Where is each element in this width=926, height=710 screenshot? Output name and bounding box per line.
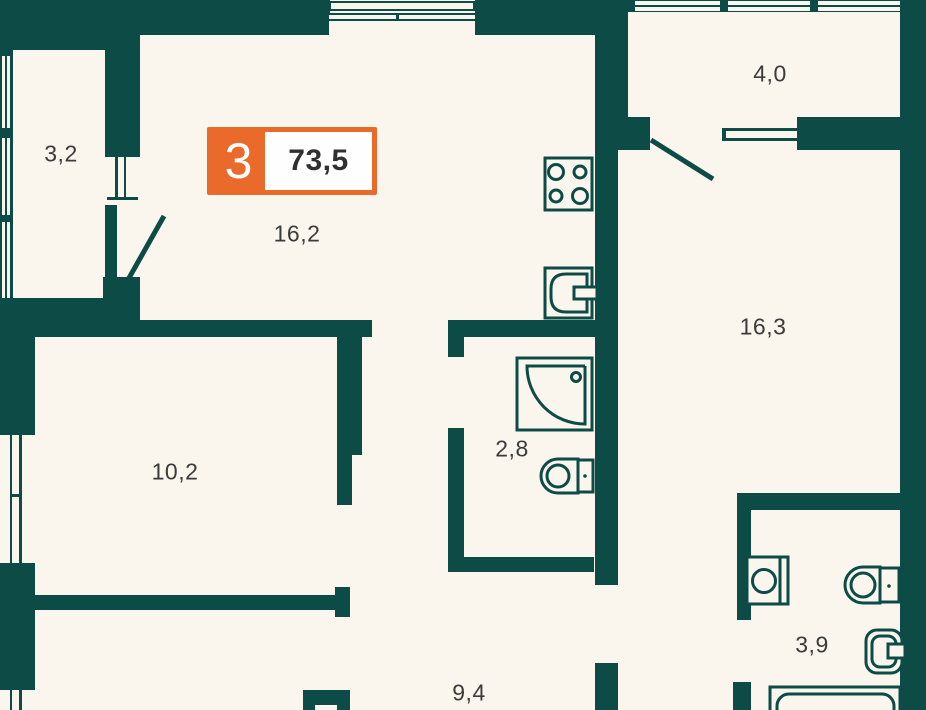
room-area-label-loggia-left: 3,2 — [44, 141, 77, 168]
room-area-label-hallway: 9,4 — [452, 680, 485, 707]
door-swing-icon — [651, 140, 713, 179]
toilet-icon — [541, 459, 593, 493]
washing-machine-icon — [747, 557, 788, 604]
apartment-badge: 3 73,5 — [207, 127, 377, 195]
bathroom-sink-icon — [866, 630, 905, 673]
room-area-label-room-right: 16,3 — [740, 314, 787, 341]
toilet-icon — [845, 567, 899, 603]
room-area-label-bathroom-small: 2,8 — [495, 436, 528, 463]
room-area-label-bathroom-large: 3,9 — [795, 632, 828, 659]
rooms-count-badge: 3 — [212, 132, 265, 190]
room-area-label-kitchen-living: 16,2 — [274, 221, 321, 248]
floor-plan: 3,2 16,2 4,0 16,3 10,2 2,8 9,4 3,9 3 73,… — [0, 0, 926, 710]
door-swing-icon — [129, 216, 164, 278]
total-area-value: 73,5 — [265, 132, 372, 190]
room-area-label-room-left: 10,2 — [152, 459, 199, 486]
kitchen-sink-icon — [545, 268, 597, 318]
room-area-label-loggia-top: 4,0 — [753, 61, 786, 88]
stove-icon — [545, 158, 592, 210]
fixtures-layer — [0, 0, 926, 710]
bathtub-icon — [770, 687, 900, 710]
shower-icon — [517, 358, 592, 430]
